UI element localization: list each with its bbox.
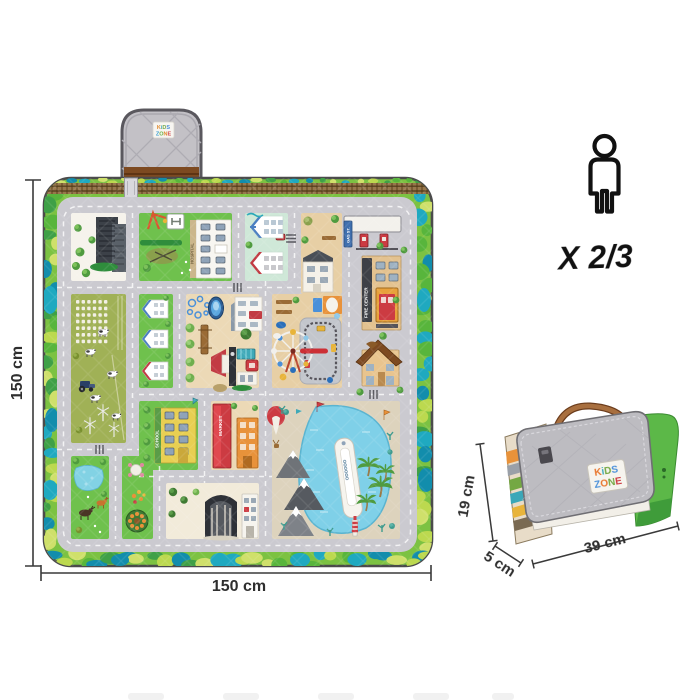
svg-text:150 cm: 150 cm <box>212 578 266 595</box>
svg-text:KiDS: KiDS <box>157 125 171 131</box>
svg-text:39 cm: 39 cm <box>582 530 627 557</box>
svg-text:X 2/3: X 2/3 <box>555 238 633 277</box>
svg-text:150 cm: 150 cm <box>9 346 26 400</box>
svg-text:5 cm: 5 cm <box>480 548 518 581</box>
svg-text:19 cm: 19 cm <box>455 474 479 519</box>
svg-text:ZONE: ZONE <box>156 132 172 138</box>
